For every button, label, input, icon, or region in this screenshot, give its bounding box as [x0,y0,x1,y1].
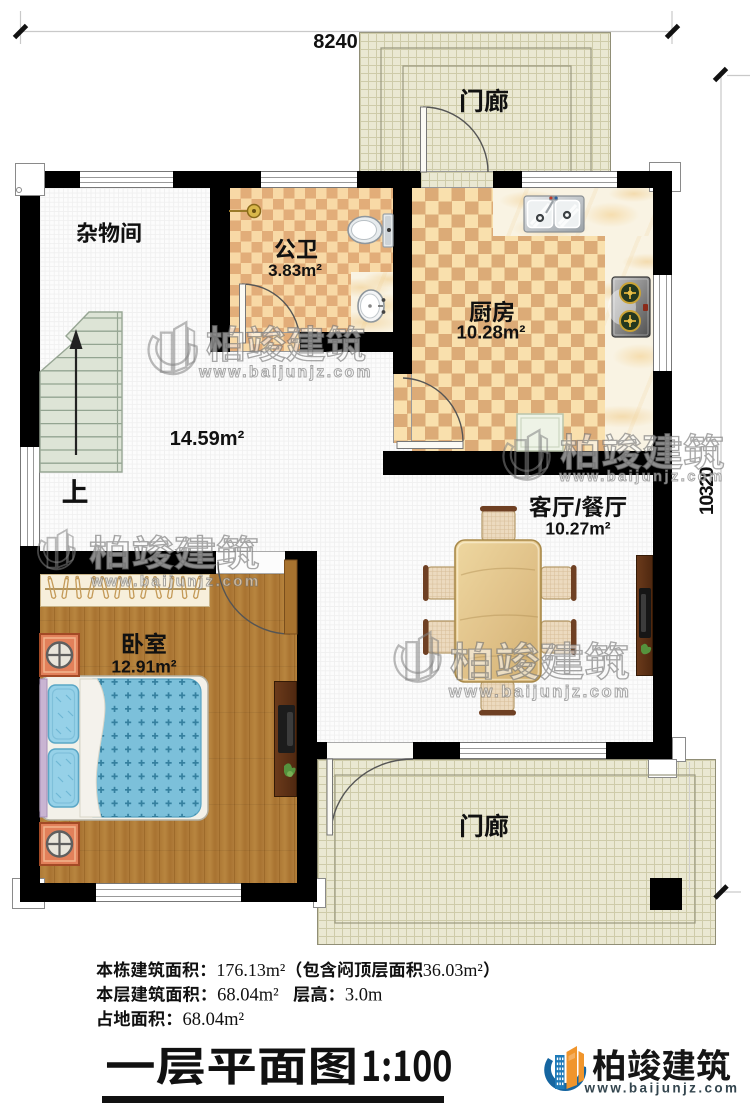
svg-text:12.91m²: 12.91m² [111,656,176,676]
svg-text:10.28m²: 10.28m² [457,322,526,343]
svg-text:www.baijunjz.com: www.baijunjz.com [584,1080,740,1095]
svg-text:8240: 8240 [313,31,358,53]
svg-text:www.baijunjz.com: www.baijunjz.com [448,683,631,701]
svg-text:68.04m²: 68.04m² [217,986,279,1006]
svg-text:3.0m: 3.0m [345,986,383,1006]
svg-text:14.59m²: 14.59m² [170,428,245,450]
svg-text:176.13m²: 176.13m² [216,960,285,980]
svg-text:www.baijunjz.com: www.baijunjz.com [198,364,373,381]
svg-text:68.04m²: 68.04m² [183,1010,245,1030]
svg-text:www.baijunjz.com: www.baijunjz.com [558,469,724,485]
svg-text:3.83m²: 3.83m² [268,261,322,280]
svg-text:/: / [575,494,582,520]
svg-text:36.03m²: 36.03m² [423,960,483,980]
svg-text:10.27m²: 10.27m² [545,518,610,538]
svg-text:www.baijunjz.com: www.baijunjz.com [90,573,260,590]
